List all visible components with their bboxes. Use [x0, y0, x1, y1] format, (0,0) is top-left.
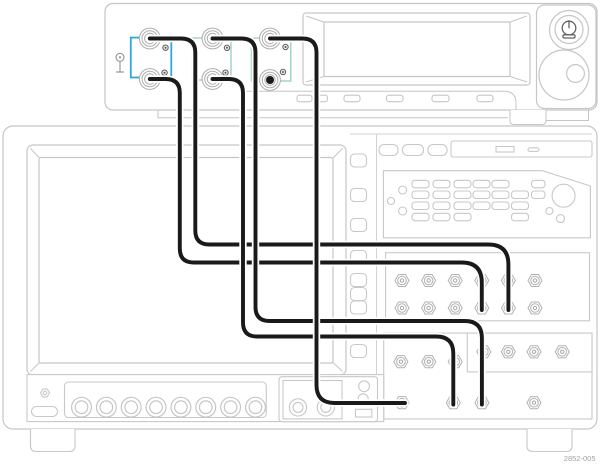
svg-text:2852-005: 2852-005 — [564, 454, 596, 463]
